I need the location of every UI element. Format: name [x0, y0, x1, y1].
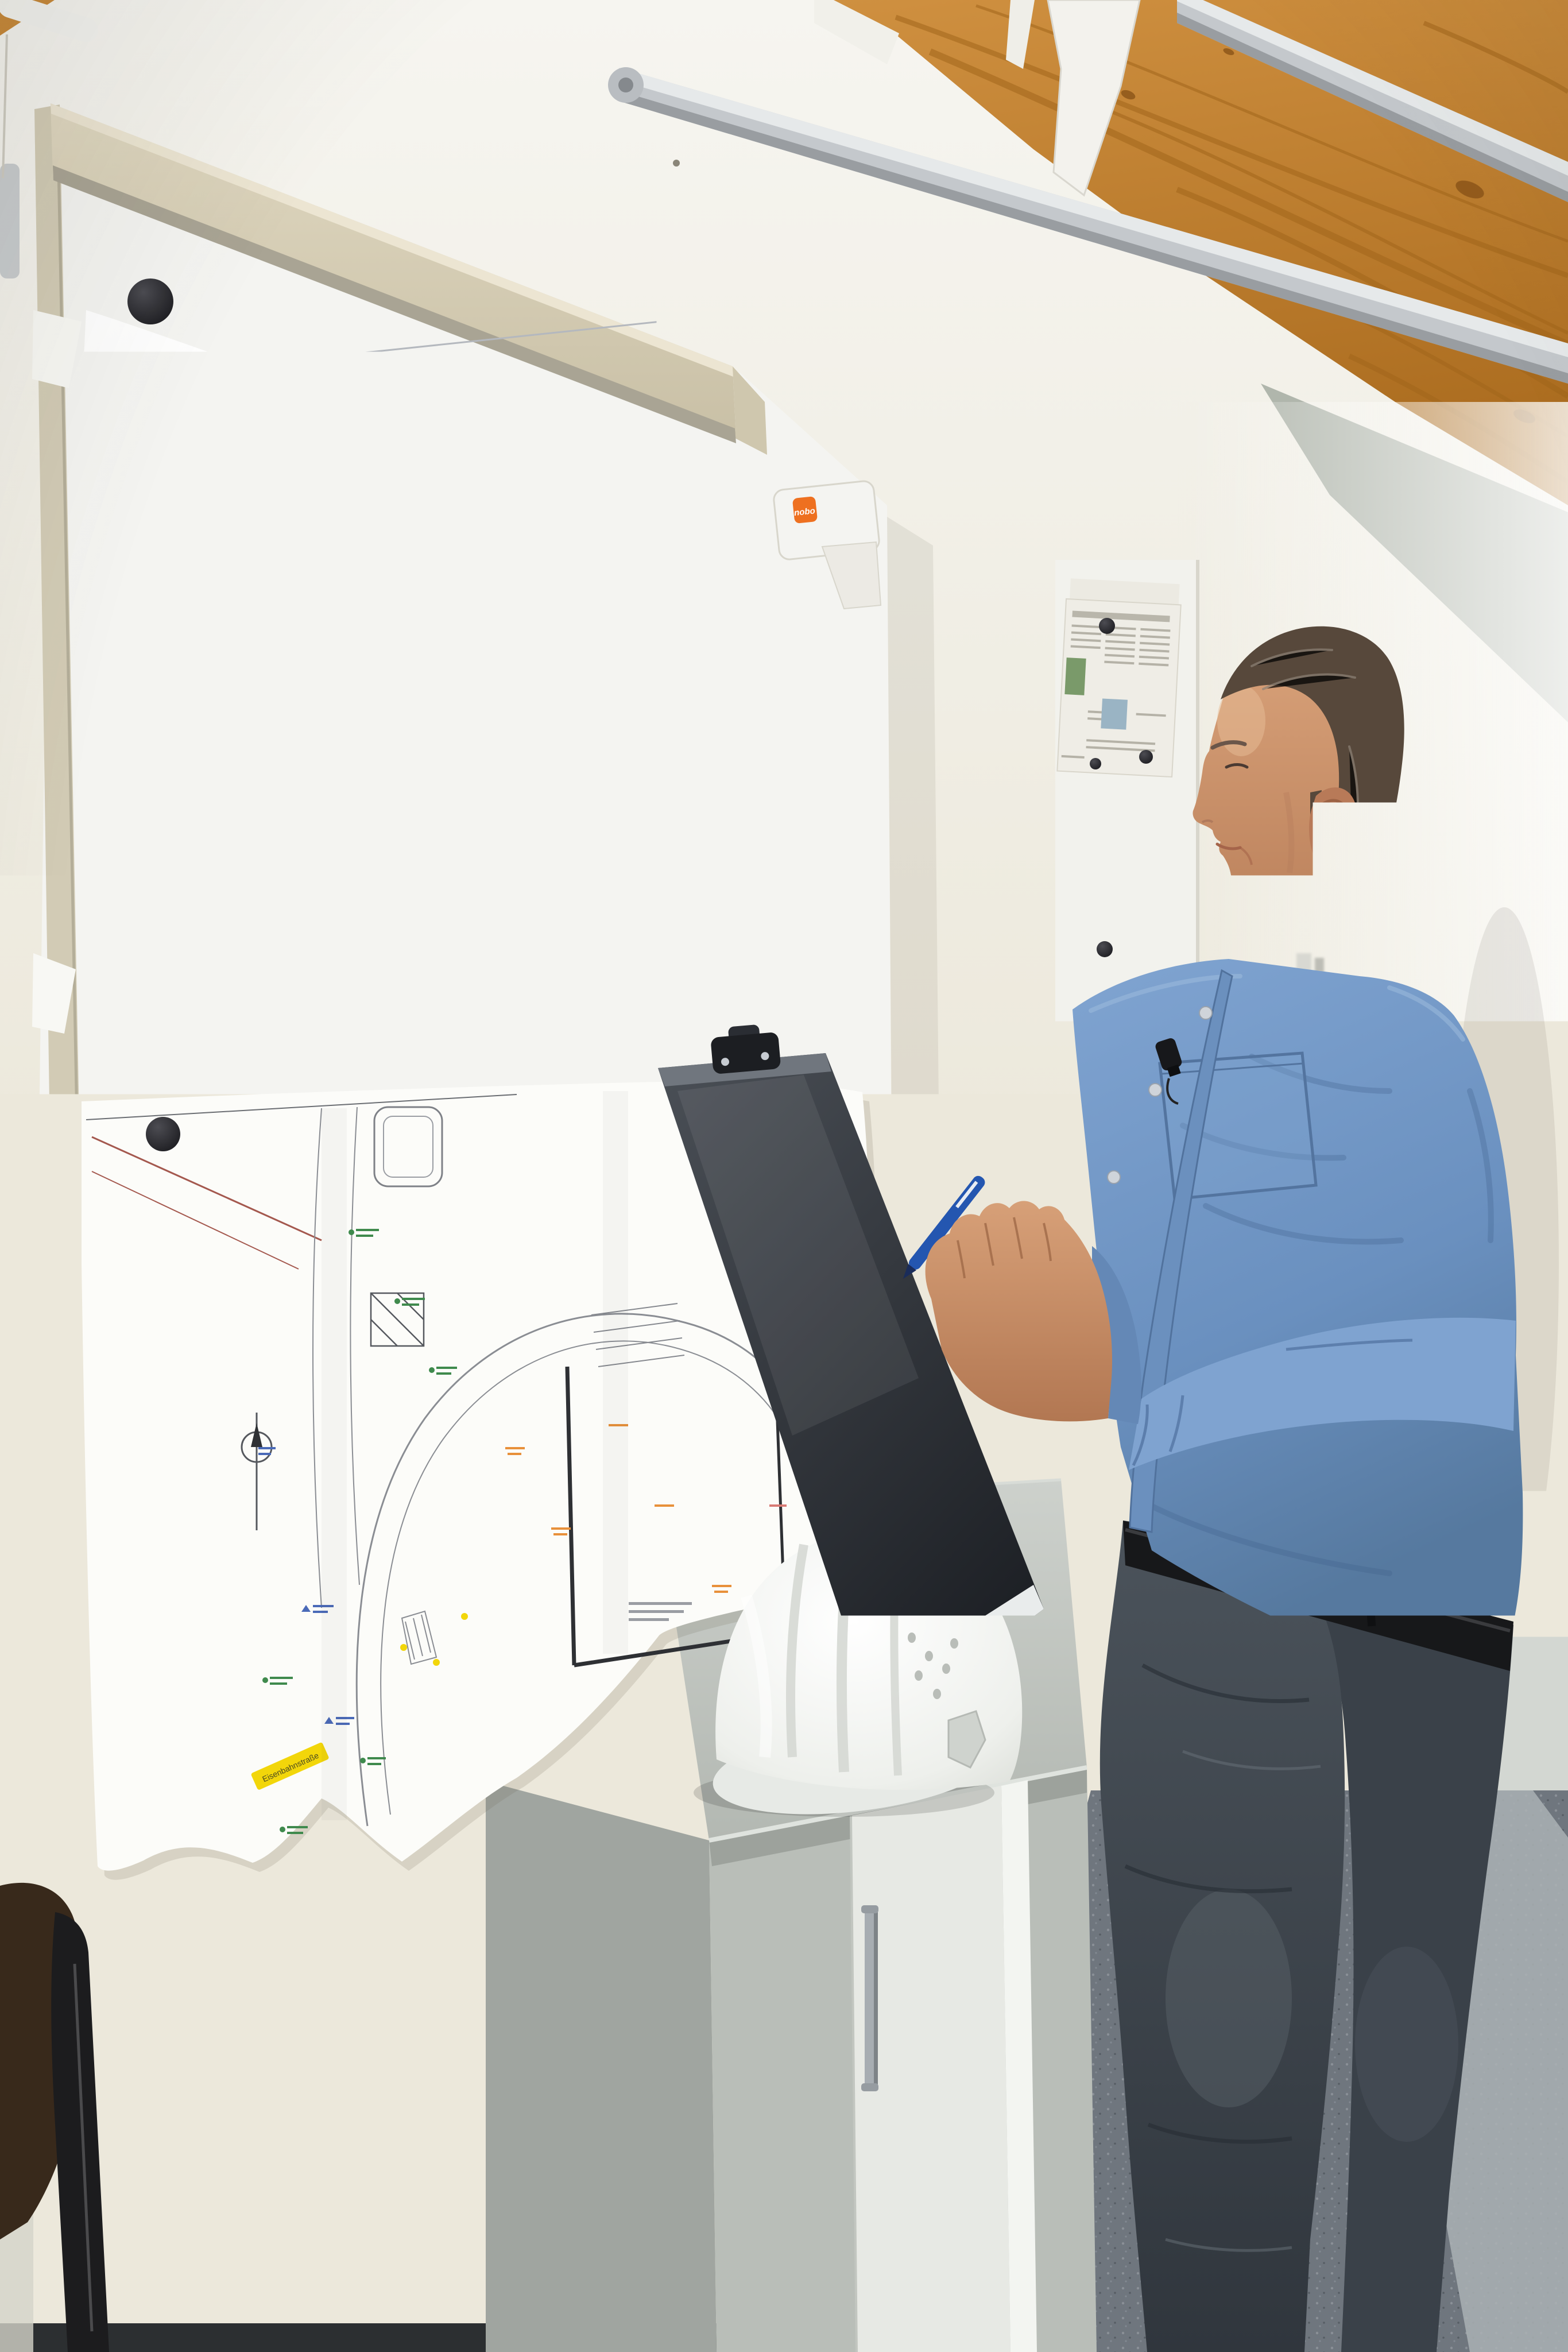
photo-scene: nobo [0, 0, 1568, 2352]
vignette [0, 0, 1568, 2352]
scene-svg: nobo [0, 0, 1568, 2352]
